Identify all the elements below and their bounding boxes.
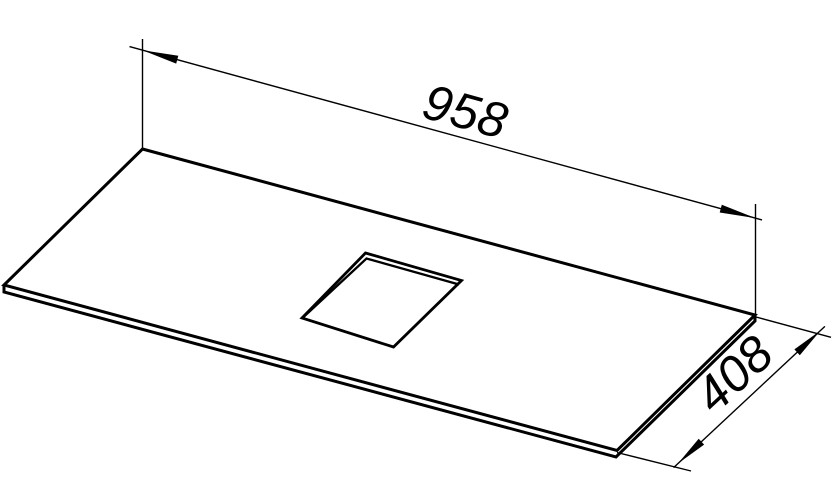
length-arrowhead-left-icon (143, 50, 179, 63)
technical-drawing-canvas: 958 408 (0, 0, 835, 500)
length-dimension-label: 958 (417, 73, 514, 149)
depth-arrowhead-top-icon (794, 331, 820, 356)
isometric-panel-drawing: 958 408 (0, 0, 835, 500)
length-arrowhead-right-icon (720, 205, 756, 218)
depth-extension-line-top (756, 317, 831, 337)
depth-arrowhead-bottom-icon (678, 439, 704, 464)
